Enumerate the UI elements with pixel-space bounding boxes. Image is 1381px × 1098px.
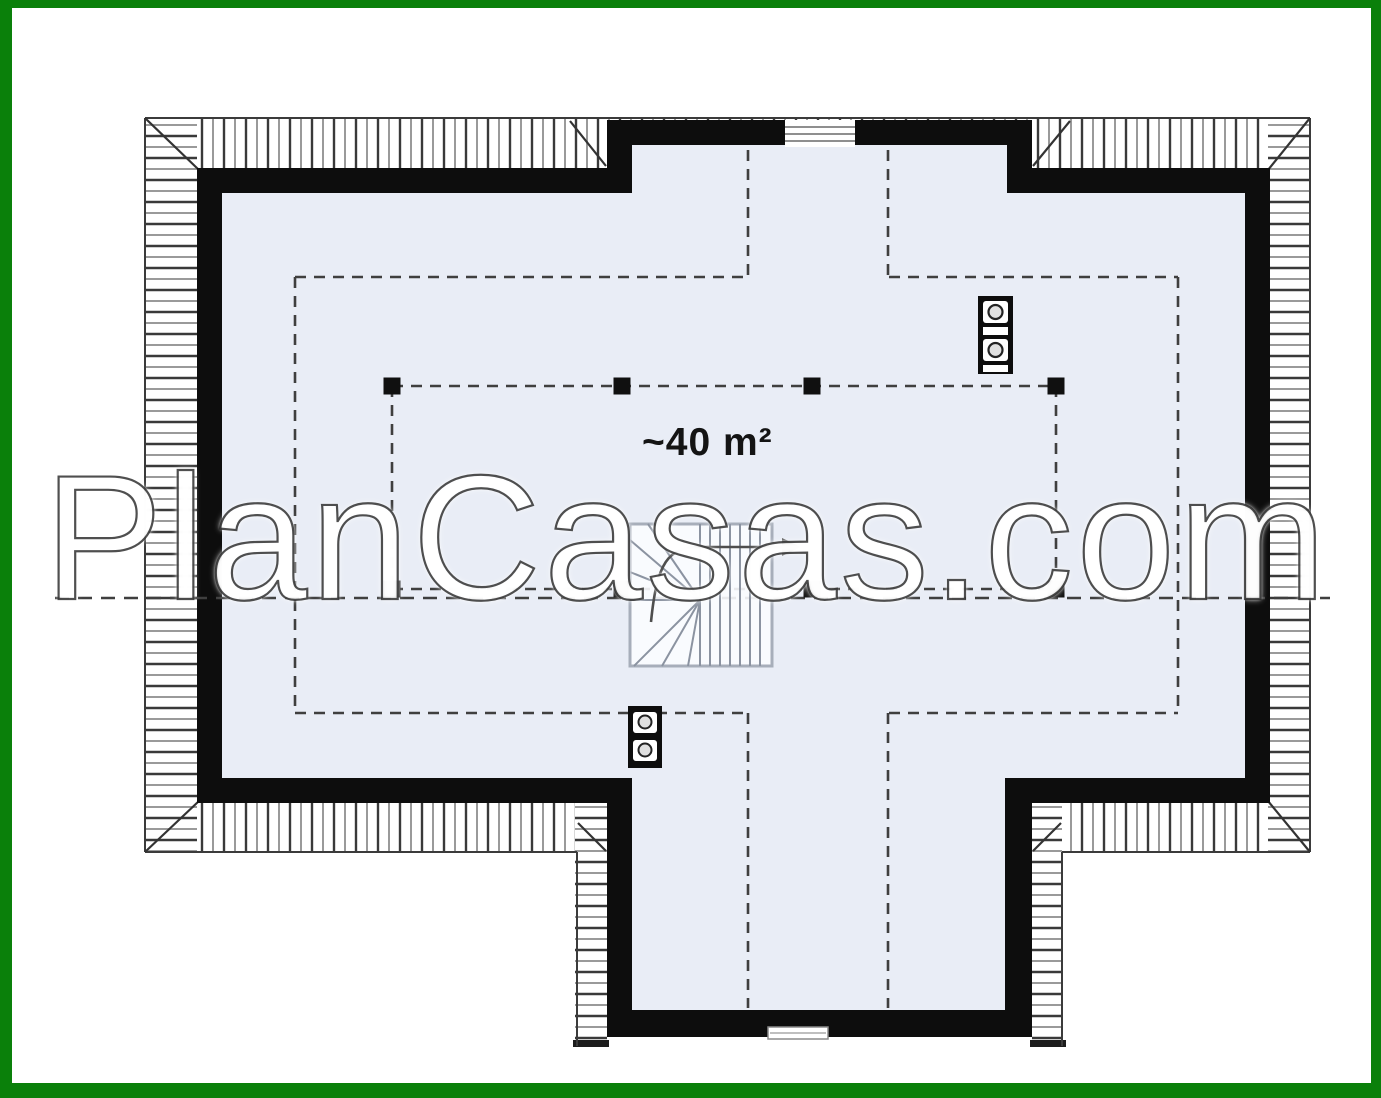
eave-end-cap xyxy=(1030,1040,1066,1047)
floorplan-page: ~40 m² PlanCasas.com xyxy=(0,0,1381,1098)
roof-band-porch-left xyxy=(575,803,607,1046)
flue-pipe xyxy=(989,343,1003,357)
chimney-flue-icon xyxy=(978,296,1013,374)
window-icon xyxy=(785,120,855,147)
flue-pipe xyxy=(639,744,652,757)
flue-divider xyxy=(983,327,1008,335)
post xyxy=(614,378,631,395)
roof-band-porch-right xyxy=(1032,803,1062,1046)
chimney-flue-icon xyxy=(628,706,662,768)
post xyxy=(1048,378,1065,395)
eave-end-cap xyxy=(573,1040,609,1047)
flue-pipe xyxy=(989,305,1003,319)
flue-divider xyxy=(983,365,1008,372)
watermark-text: PlanCasas.com xyxy=(44,449,1330,627)
post xyxy=(804,378,821,395)
window-icon xyxy=(768,1027,828,1039)
flue-pipe xyxy=(639,716,652,729)
post xyxy=(384,378,401,395)
